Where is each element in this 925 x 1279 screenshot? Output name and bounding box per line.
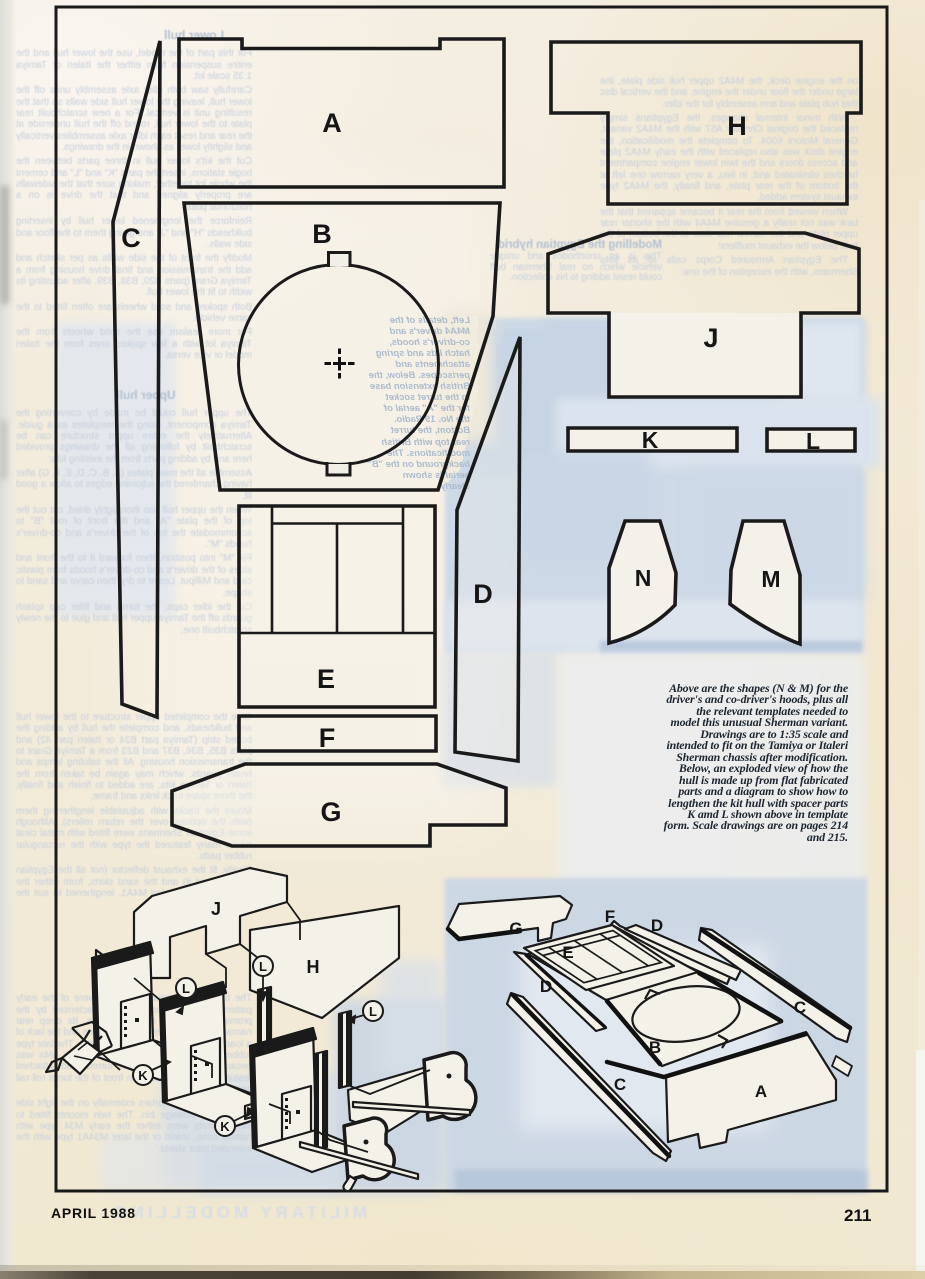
svg-text:J: J bbox=[703, 323, 718, 353]
svg-text:F: F bbox=[605, 907, 615, 926]
svg-text:C: C bbox=[794, 998, 806, 1017]
svg-text:A: A bbox=[322, 108, 342, 138]
svg-text:J: J bbox=[211, 899, 221, 919]
svg-text:D: D bbox=[540, 977, 552, 996]
svg-text:E: E bbox=[562, 943, 573, 962]
svg-text:G: G bbox=[509, 919, 522, 938]
svg-text:E: E bbox=[317, 664, 335, 694]
svg-text:B: B bbox=[649, 1038, 661, 1057]
svg-text:H: H bbox=[307, 957, 320, 977]
svg-text:L: L bbox=[182, 981, 190, 996]
svg-text:D: D bbox=[651, 916, 663, 935]
svg-text:C: C bbox=[614, 1075, 626, 1094]
svg-text:K: K bbox=[138, 1068, 148, 1083]
svg-text:C: C bbox=[121, 223, 141, 253]
svg-text:L: L bbox=[806, 428, 820, 454]
svg-text:L: L bbox=[259, 959, 267, 974]
svg-text:K: K bbox=[642, 427, 659, 453]
svg-text:G: G bbox=[320, 797, 341, 827]
svg-text:F: F bbox=[319, 723, 336, 753]
svg-text:L: L bbox=[369, 1004, 377, 1019]
svg-text:N: N bbox=[635, 565, 652, 591]
svg-text:H: H bbox=[727, 111, 747, 141]
svg-text:D: D bbox=[473, 579, 493, 609]
svg-text:B: B bbox=[312, 219, 332, 249]
svg-text:M: M bbox=[761, 566, 780, 592]
svg-text:K: K bbox=[220, 1119, 230, 1134]
svg-text:A: A bbox=[755, 1082, 767, 1101]
